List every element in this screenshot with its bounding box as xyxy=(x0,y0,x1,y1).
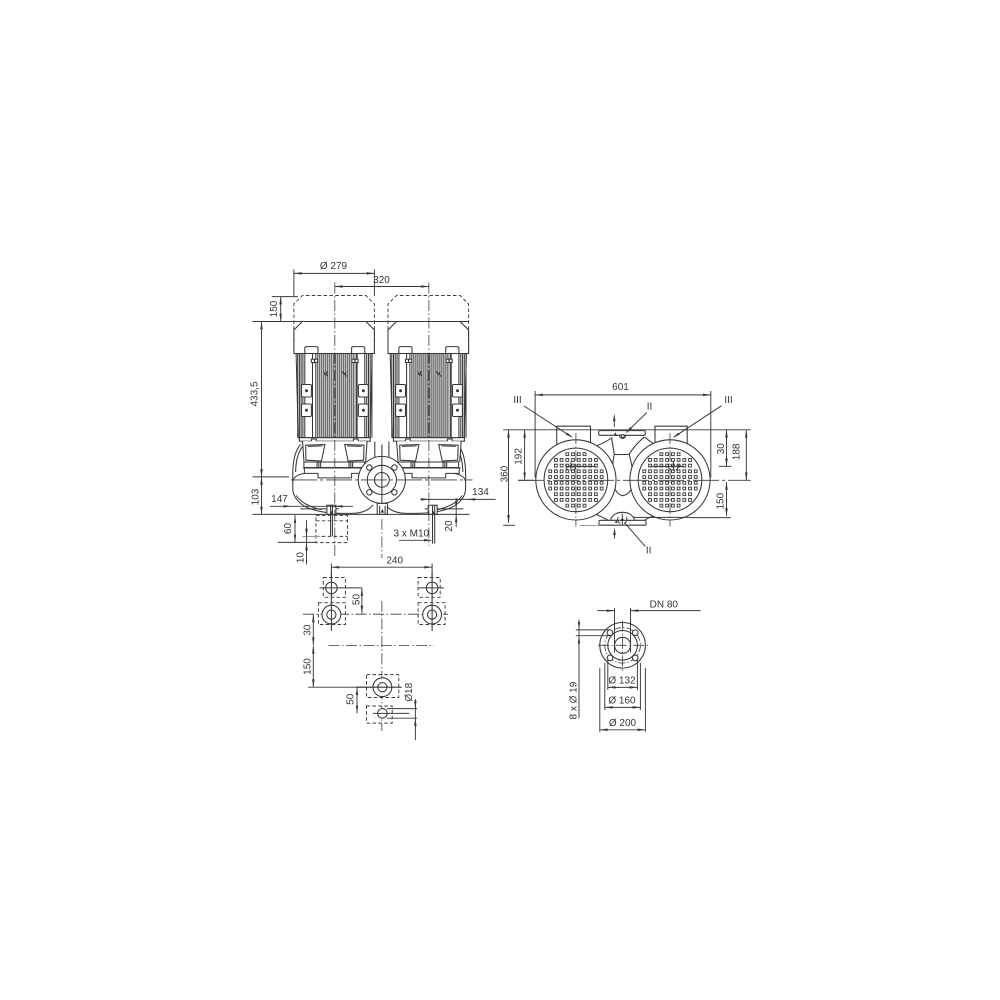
svg-text:188: 188 xyxy=(732,443,743,460)
svg-text:320: 320 xyxy=(373,275,390,286)
svg-text:30: 30 xyxy=(302,624,313,636)
svg-text:433,5: 433,5 xyxy=(249,381,260,406)
svg-text:Ø 200: Ø 200 xyxy=(609,718,637,729)
svg-text:360: 360 xyxy=(500,465,511,482)
svg-text:20: 20 xyxy=(444,520,455,532)
svg-text:147: 147 xyxy=(271,494,288,505)
svg-text:103: 103 xyxy=(251,488,262,505)
svg-text:Ø18: Ø18 xyxy=(404,682,415,701)
svg-text:III: III xyxy=(724,395,732,406)
svg-text:134: 134 xyxy=(472,487,489,498)
svg-text:150: 150 xyxy=(716,492,727,509)
svg-text:Ø 132: Ø 132 xyxy=(608,676,636,687)
svg-text:60: 60 xyxy=(283,523,294,535)
svg-text:DN 80: DN 80 xyxy=(650,599,679,610)
svg-text:150: 150 xyxy=(302,658,313,675)
svg-text:601: 601 xyxy=(612,382,629,393)
svg-text:150: 150 xyxy=(269,300,280,317)
svg-text:II: II xyxy=(646,546,652,557)
svg-text:III: III xyxy=(513,395,521,406)
svg-text:8 x Ø 19: 8 x Ø 19 xyxy=(569,681,580,719)
svg-text:240: 240 xyxy=(386,556,403,567)
svg-text:Ø 279: Ø 279 xyxy=(320,261,348,272)
svg-text:50: 50 xyxy=(351,594,362,606)
svg-text:50: 50 xyxy=(346,693,357,705)
svg-text:II: II xyxy=(647,402,653,413)
svg-text:3 x M10: 3 x M10 xyxy=(394,528,430,539)
svg-text:10: 10 xyxy=(296,552,307,564)
svg-text:192: 192 xyxy=(514,448,525,465)
svg-text:Ø 160: Ø 160 xyxy=(608,696,636,707)
svg-text:30: 30 xyxy=(716,443,727,455)
